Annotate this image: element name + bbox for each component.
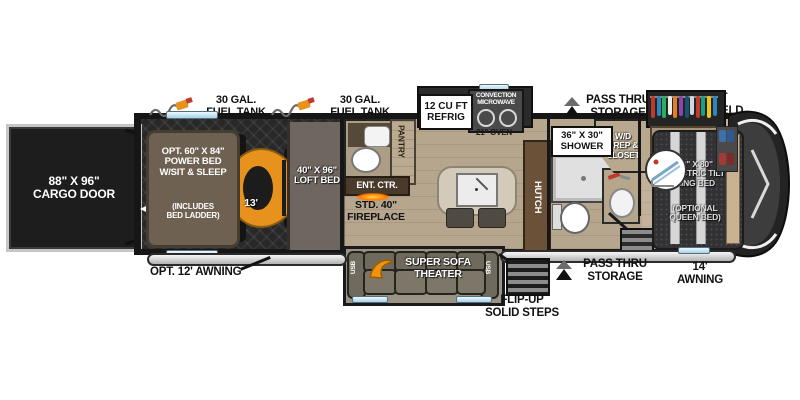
flip-up-steps-label: FLIP-UP SOLID STEPS (476, 294, 568, 319)
toilet (351, 147, 381, 173)
slide-topper (678, 247, 710, 254)
ent-ctr-label: ENT. CTR. (356, 181, 397, 191)
awning-front-label: 14' AWNING (668, 261, 732, 286)
awning-rear-label: OPT. 12' AWNING (150, 266, 268, 279)
drain-icon (581, 176, 586, 181)
refrigerator-label: 12 CU FT REFRIG (419, 94, 473, 130)
flip-up-steps (506, 258, 550, 296)
loft-bed-area: 40" X 96" LOFT BED (287, 122, 345, 250)
shower-label: 36" X 30" SHOWER (551, 126, 613, 157)
rear-wall (134, 113, 141, 255)
sofa-label: SUPER SOFA THEATER (390, 257, 486, 280)
power-bed-label: OPT. 60" X 84" POWER BED W/SIT & SLEEP (149, 147, 237, 178)
stool (478, 208, 506, 228)
floorplan-canvas: 88" X 96" CARGO DOOR 30 GAL. FUEL TANK 3… (0, 0, 800, 400)
toiletries-icon (608, 172, 621, 180)
hutch-label: HUTCH (532, 181, 542, 213)
microwave-label: CONVECTION MICROWAVE (470, 92, 522, 106)
usb-label-left: USB (350, 261, 357, 274)
tilt-bed-inset (644, 148, 688, 192)
power-bed-note: (INCLUDES BED LADDER) (149, 203, 237, 221)
oven-label: 21" OVEN (468, 129, 520, 138)
pass-thru-bottom-label: PASS THRU STORAGE (572, 258, 658, 283)
stool (446, 208, 474, 228)
pass-thru-arrows-icon (564, 97, 580, 119)
pantry-label: PANTRY (396, 125, 405, 158)
hanging-clothes (651, 96, 719, 120)
range: CONVECTION MICROWAVE (468, 89, 524, 133)
cargo-door-ramp: 88" X 96" CARGO DOOR (6, 124, 142, 252)
faucet-icon (475, 188, 478, 191)
garage-length-label: 13' (236, 198, 266, 210)
slide-topper (352, 296, 388, 303)
fuel-tank-mid-label: 30 GAL. FUEL TANK (322, 94, 398, 118)
slide-topper (166, 111, 218, 119)
bath-sink (364, 126, 390, 147)
pass-thru-top-label: PASS THRU STORAGE (580, 94, 656, 119)
cargo-door-label: 88" X 96" CARGO DOOR (33, 175, 115, 201)
toiletries-icon (620, 175, 630, 180)
kitchen-bath-wall (547, 118, 550, 252)
burner-icon (477, 109, 495, 127)
bath-bedroom-wall (638, 118, 641, 216)
vanity-sink (609, 188, 635, 218)
fireplace-label: STD. 40" FIREPLACE (340, 200, 412, 223)
pass-thru-arrows-icon (556, 260, 572, 282)
island-sink (456, 173, 498, 207)
vanity (602, 168, 640, 224)
fuel-pump-icon (270, 95, 316, 121)
burner-icon (499, 109, 517, 127)
queen-bed-option-label: (OPTIONAL QUEEN BED) (656, 204, 734, 223)
toilet-bowl (560, 202, 590, 234)
shoe-shelf (716, 126, 738, 172)
loft-bed-label: 40" X 96" LOFT BED (288, 166, 346, 187)
power-bed: OPT. 60" X 84" POWER BED W/SIT & SLEEP (… (146, 130, 240, 248)
